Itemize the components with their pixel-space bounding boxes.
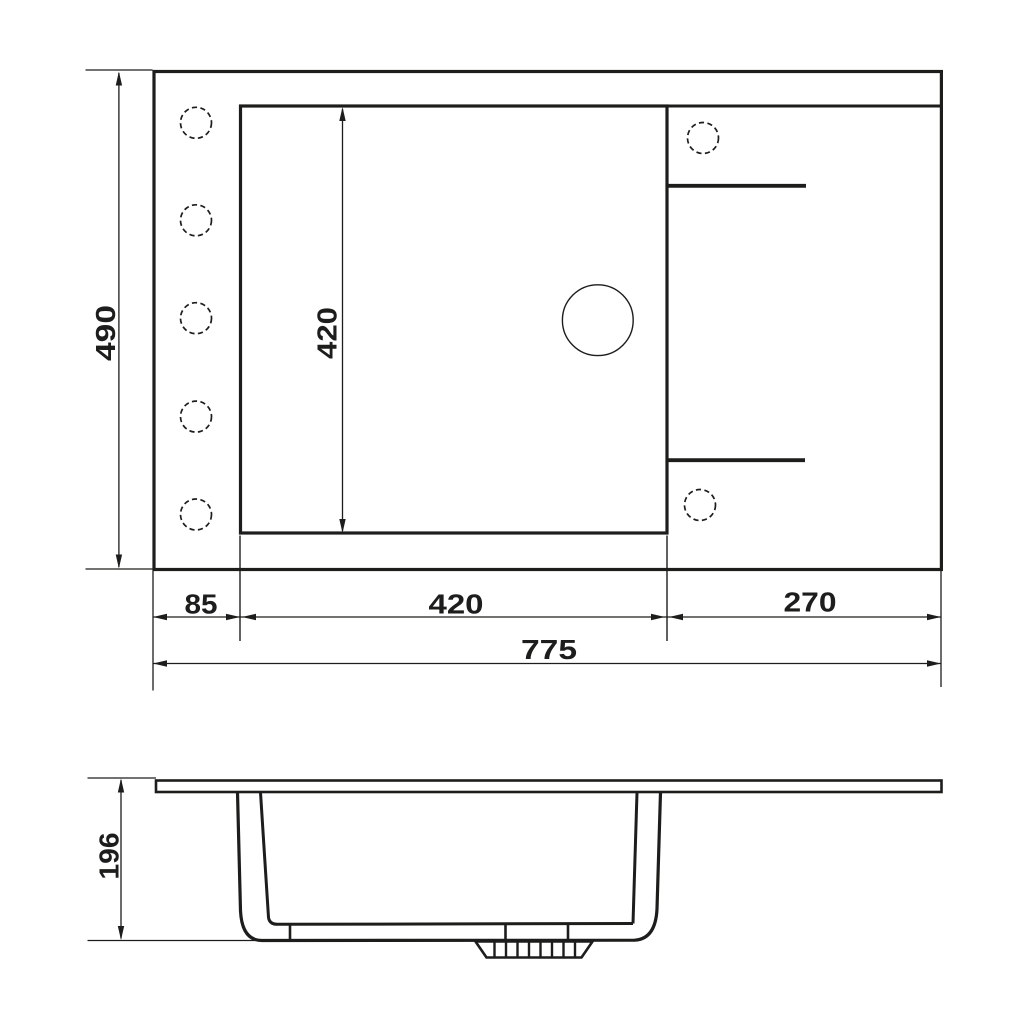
svg-text:490: 490 xyxy=(90,305,121,361)
svg-text:270: 270 xyxy=(784,587,837,618)
svg-text:196: 196 xyxy=(94,833,125,880)
svg-text:775: 775 xyxy=(521,634,577,665)
svg-text:420: 420 xyxy=(429,589,484,620)
svg-text:420: 420 xyxy=(312,307,343,359)
svg-text:85: 85 xyxy=(185,589,218,620)
